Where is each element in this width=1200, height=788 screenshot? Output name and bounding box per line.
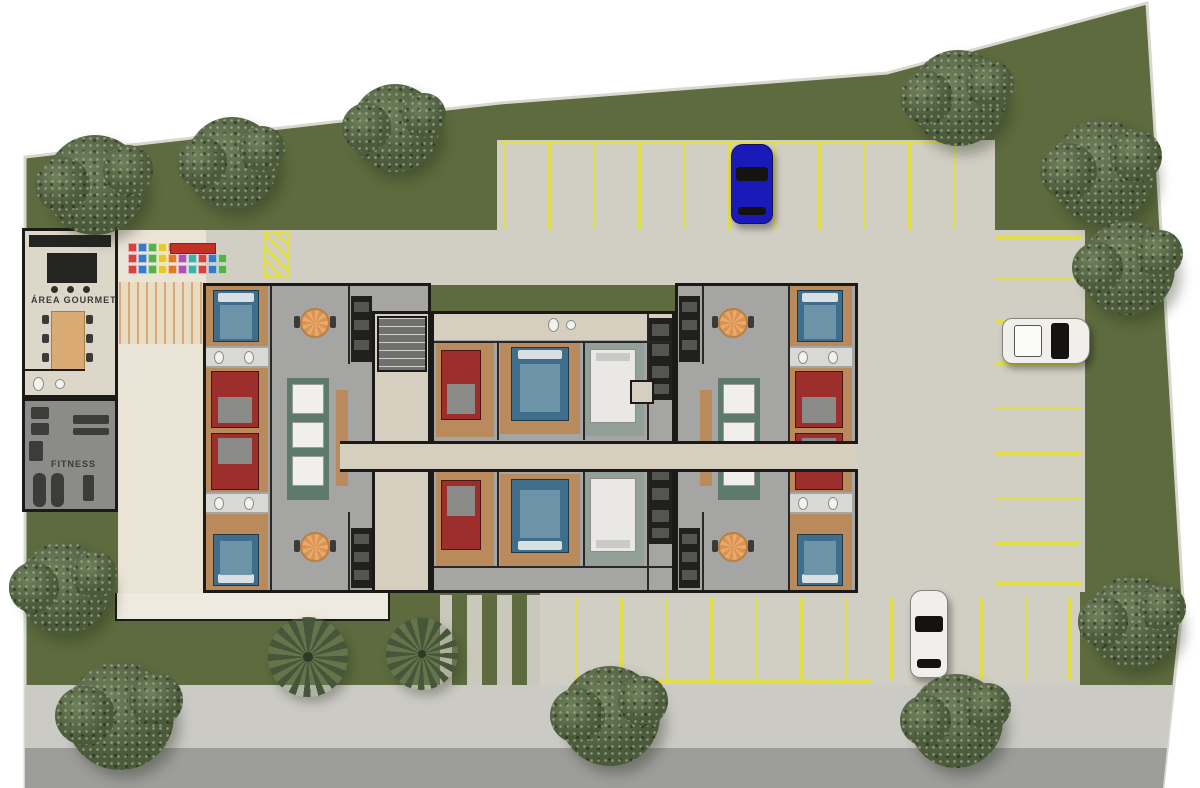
tree <box>1087 576 1179 668</box>
tree <box>1050 120 1154 224</box>
tree <box>1081 221 1175 315</box>
tree <box>18 542 110 634</box>
site-plan-stage: ÁREA GOURMET FITNESS <box>0 0 1200 788</box>
tree <box>45 135 145 235</box>
palm-tree <box>268 617 348 697</box>
tree <box>560 666 660 766</box>
tree <box>351 84 439 172</box>
tree <box>186 117 278 209</box>
trees-layer <box>0 0 1200 788</box>
palm-tree <box>386 618 458 690</box>
tree <box>909 674 1003 768</box>
tree <box>910 50 1006 146</box>
tree <box>66 662 174 770</box>
